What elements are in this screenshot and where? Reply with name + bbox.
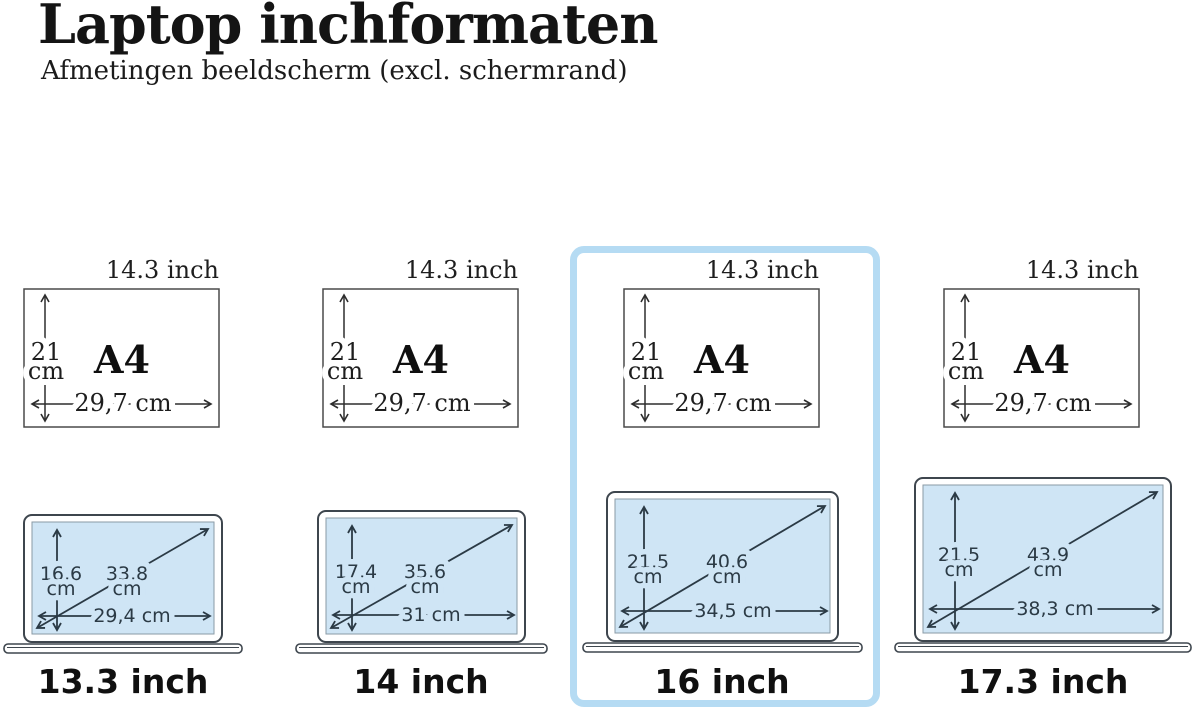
diagonal-unit: cm — [411, 576, 440, 598]
page-title: Laptop inchformaten — [38, 0, 658, 56]
laptop-base — [4, 644, 242, 653]
height-unit: cm — [47, 578, 76, 600]
a4-diagram: 14.3 inch 21 cm A4 29,7 cm — [623, 251, 823, 428]
a4-width-value: 29,7 cm — [74, 389, 172, 417]
a4-diagonal-label: 14.3 inch — [1026, 256, 1139, 284]
a4-width-value: 29,7 cm — [994, 389, 1092, 417]
a4-width-value: 29,7 cm — [674, 389, 772, 417]
a4-height-unit: cm — [948, 357, 984, 385]
a4-height-unit: cm — [327, 357, 363, 385]
height-unit: cm — [342, 576, 371, 598]
width-value: 34,5 cm — [694, 600, 771, 622]
laptop-diagram-17-3: 21,5 cm 43,9 cm 38,3 cm — [894, 476, 1192, 654]
laptop-base — [583, 643, 862, 652]
width-value: 38,3 cm — [1016, 598, 1093, 620]
a4-diagram: 14.3 inch 21 cm A4 29,7 cm — [943, 251, 1143, 428]
size-label-13-3-inch: 13.3 inch — [0, 662, 263, 701]
a4-diagonal-label: 14.3 inch — [405, 256, 518, 284]
a4-height-unit: cm — [28, 357, 64, 385]
a4-name: A4 — [693, 337, 750, 382]
height-unit: cm — [634, 566, 663, 588]
page-subtitle: Afmetingen beeldscherm (excl. schermrand… — [41, 56, 627, 86]
size-label-16-inch: 16 inch — [582, 662, 862, 701]
laptop-base — [895, 643, 1191, 652]
laptop-diagram-16: 21,5 cm 40,6 cm 34,5 cm — [582, 490, 863, 654]
laptop-diagram-13-3: 16,6 cm 33,8 cm 29,4 cm — [3, 513, 243, 655]
width-value: 29,4 cm — [93, 605, 170, 627]
diagonal-unit: cm — [113, 578, 142, 600]
diagonal-unit: cm — [1034, 559, 1063, 581]
a4-name: A4 — [1013, 337, 1070, 382]
laptop-diagram-14: 17,4 cm 35,6 cm 31 cm — [295, 509, 548, 655]
size-label-17-3-inch: 17.3 inch — [903, 662, 1183, 701]
a4-diagonal-label: 14.3 inch — [106, 256, 219, 284]
a4-diagram: 14.3 inch 21 cm A4 29,7 cm — [23, 251, 223, 428]
a4-height-unit: cm — [628, 357, 664, 385]
a4-width-value: 29,7 cm — [373, 389, 471, 417]
diagonal-unit: cm — [713, 566, 742, 588]
a4-diagonal-label: 14.3 inch — [706, 256, 819, 284]
size-label-14-inch: 14 inch — [281, 662, 561, 701]
infographic: Laptop inchformaten Afmetingen beeldsche… — [0, 0, 1200, 711]
a4-name: A4 — [93, 337, 150, 382]
laptop-base — [296, 644, 547, 653]
height-unit: cm — [945, 559, 974, 581]
a4-name: A4 — [392, 337, 449, 382]
a4-diagram: 14.3 inch 21 cm A4 29,7 cm — [322, 251, 522, 428]
width-value: 31 cm — [401, 604, 460, 626]
